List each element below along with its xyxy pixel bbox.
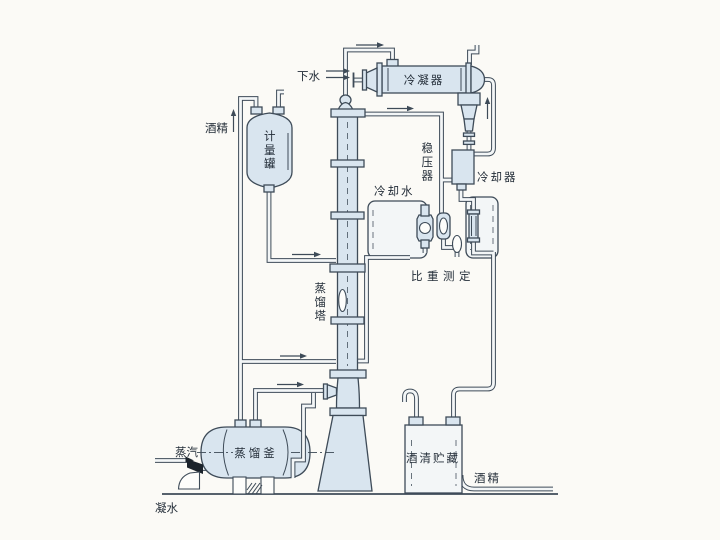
steam-valve: [186, 457, 204, 475]
flow-arrow-right: [292, 252, 321, 258]
flow-arrow-up: [485, 97, 490, 119]
flow-arrow-right: [356, 42, 384, 48]
flow-arrow-right: [280, 353, 307, 359]
cooler-box: [452, 150, 474, 190]
label-condenser: 冷凝器: [404, 73, 445, 87]
process-diagram: 下水 冷凝器 酒精 计量罐 稳压器 冷却水 冷却器 比重测定 蒸馏塔 蒸馏釜 蒸…: [0, 0, 720, 540]
label-cooling-water: 冷却水: [374, 184, 415, 198]
flow-arrow-up: [231, 109, 236, 132]
condenser-left-cone: [366, 68, 377, 92]
tower-skirt: [318, 416, 372, 492]
label-kettle: 蒸馏釜: [234, 446, 278, 460]
condenser-end-cap: [471, 66, 485, 93]
label-stabilizer: 稳压器: [422, 141, 434, 183]
label-cooler: 冷却器: [477, 170, 518, 184]
flow-arrow-right: [277, 382, 304, 388]
label-metering-tank: 计量罐: [264, 129, 276, 171]
label-drain-water: 下水: [297, 69, 320, 83]
kettle-saddle: [261, 477, 274, 494]
label-tower: 蒸馏塔: [315, 281, 327, 323]
flow-arrow-right: [387, 106, 414, 112]
reducer-swanneck: [458, 93, 480, 144]
label-alcohol-feed: 酒精: [205, 121, 228, 135]
tower-neck: [337, 378, 360, 408]
tower-flange: [331, 109, 365, 117]
label-condensate: 凝水: [155, 501, 178, 515]
sight-glass: [339, 290, 347, 312]
label-gravity-measurement: 比重测定: [411, 269, 475, 283]
funnel: [453, 236, 462, 253]
label-steam: 蒸汽: [175, 445, 198, 459]
label-storage: 酒清贮藏: [406, 451, 460, 465]
label-alcohol-product: 酒精: [474, 471, 501, 485]
tower-cone-nozzle: [327, 385, 337, 399]
distillation-tower: [318, 95, 372, 491]
kettle-base-hatch: [247, 483, 262, 494]
diagram-canvas: 下水 冷凝器 酒精 计量罐 稳压器 冷却水 冷却器 比重测定 蒸馏塔 蒸馏釜 蒸…: [0, 0, 720, 540]
gauge-device: [437, 213, 450, 239]
kettle-saddle: [233, 477, 246, 494]
hydrometer-device: [468, 210, 480, 242]
pipe-support-foot: [179, 472, 200, 489]
